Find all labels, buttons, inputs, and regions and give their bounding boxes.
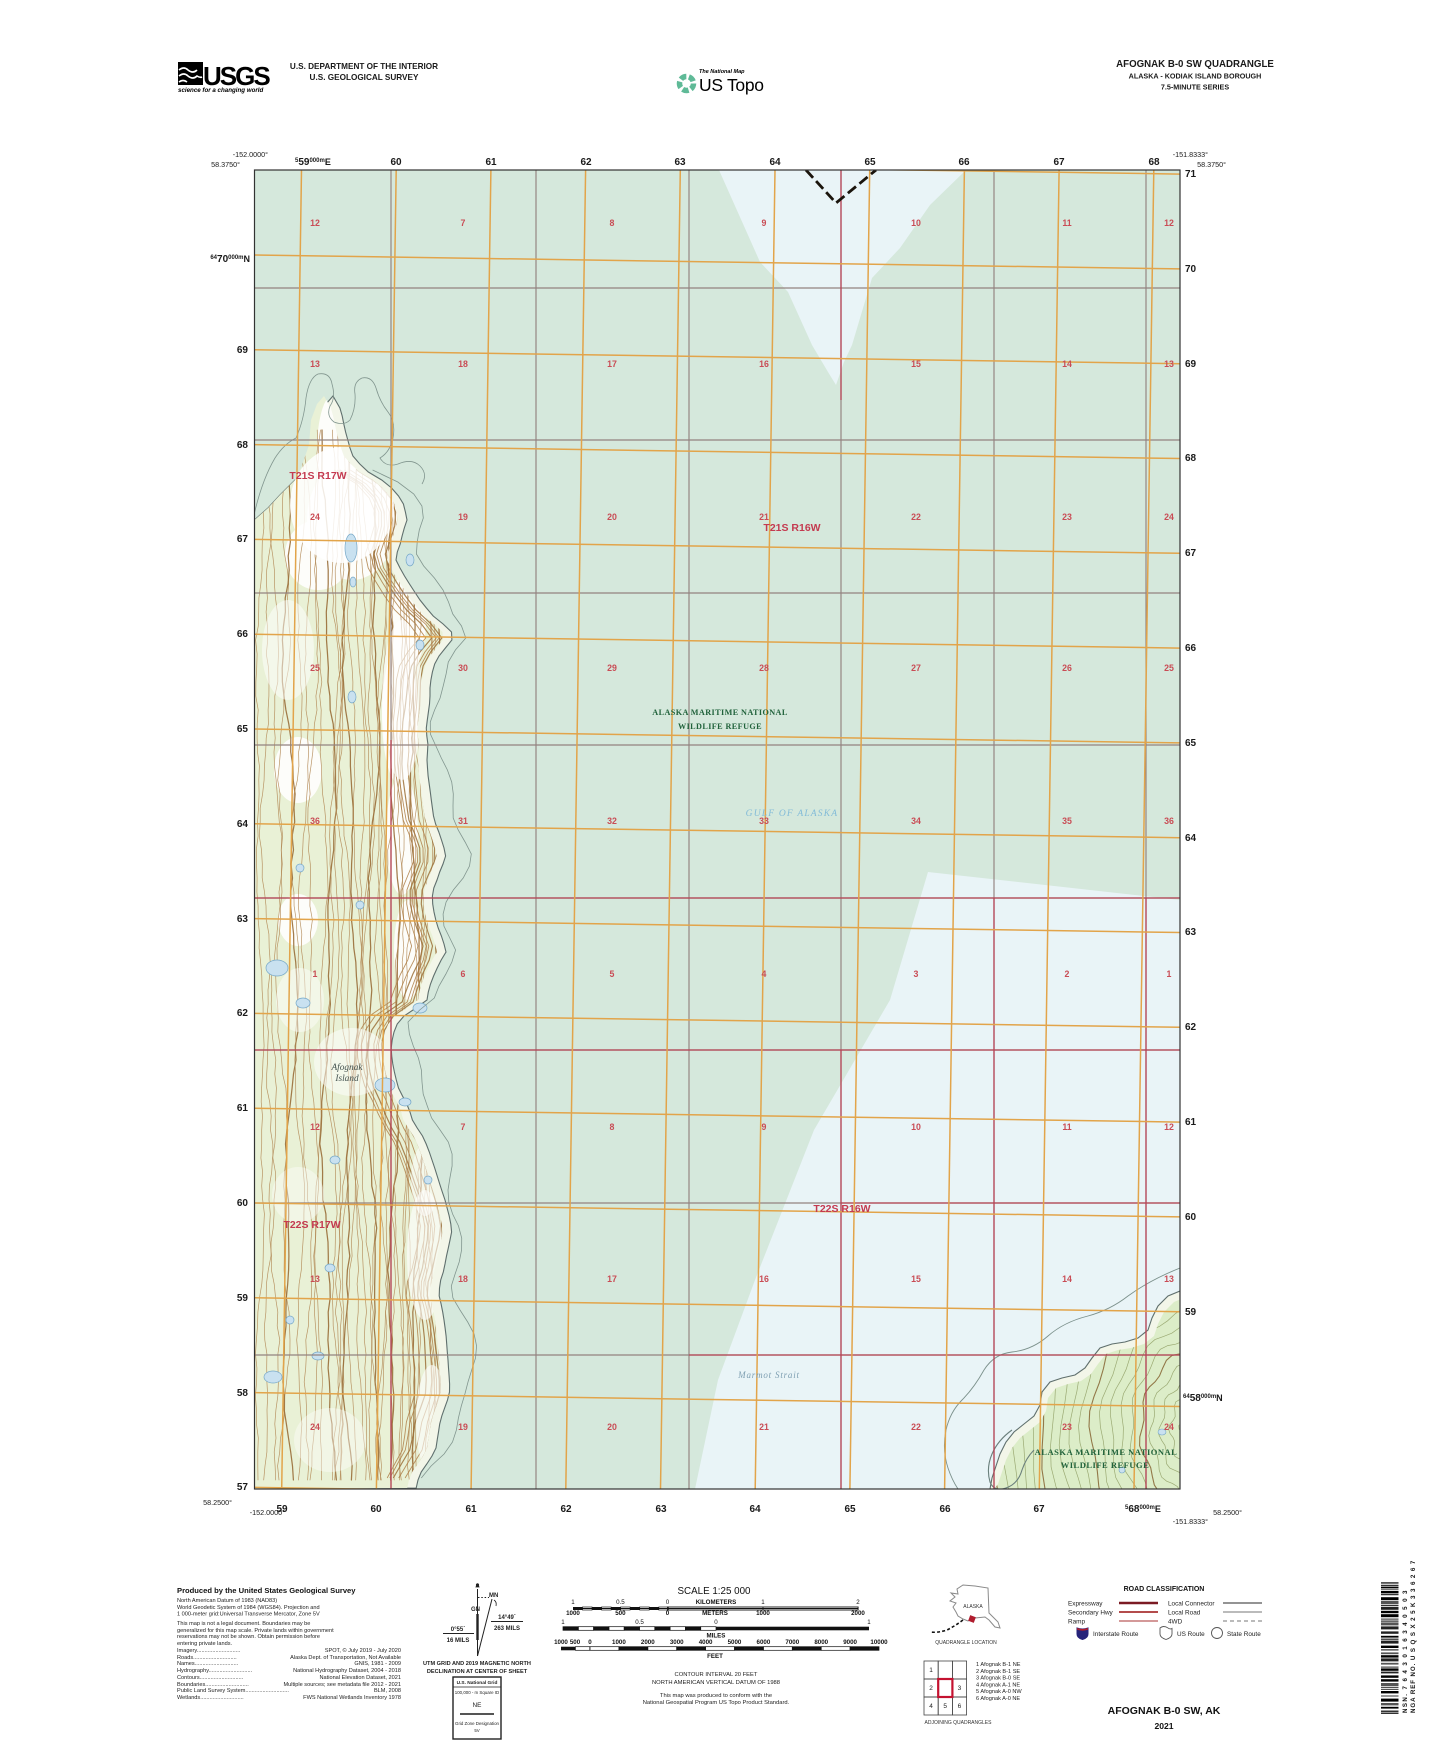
svg-text:58.2500°: 58.2500° xyxy=(1213,1508,1242,1517)
svg-text:9: 9 xyxy=(762,1122,767,1132)
svg-text:Grid Zone Designation: Grid Zone Designation xyxy=(455,1721,499,1726)
svg-text:62: 62 xyxy=(580,157,592,168)
svg-text:Produced by the United States: Produced by the United States Geological… xyxy=(177,1586,356,1595)
svg-text:SCALE 1:25 000: SCALE 1:25 000 xyxy=(678,1586,752,1597)
svg-text:7: 7 xyxy=(461,1122,466,1132)
svg-text:1000: 1000 xyxy=(554,1639,568,1646)
svg-text:24: 24 xyxy=(310,1422,320,1432)
svg-text:17: 17 xyxy=(607,1274,617,1284)
svg-text:65: 65 xyxy=(864,157,876,168)
svg-text:ALASKA MARITIME NATIONAL: ALASKA MARITIME NATIONAL xyxy=(1035,1447,1178,1457)
svg-text:11: 11 xyxy=(1062,1122,1071,1132)
svg-text:61: 61 xyxy=(237,1103,249,1114)
svg-text:20: 20 xyxy=(607,1422,617,1432)
svg-text:0: 0 xyxy=(714,1619,718,1626)
svg-text:T22S R17W: T22S R17W xyxy=(283,1219,340,1231)
svg-text:GN: GN xyxy=(471,1607,480,1613)
svg-text:SPOT, © July 2019 - July: SPOT, © July 2019 - July 2020 xyxy=(325,1647,401,1654)
svg-text:1: 1 xyxy=(761,1599,765,1606)
svg-text:64: 64 xyxy=(749,1504,761,1515)
svg-text:T21S R16W: T21S R16W xyxy=(763,522,820,534)
svg-text:31: 31 xyxy=(458,816,468,826)
svg-text:1: 1 xyxy=(929,1667,933,1674)
svg-text:1000: 1000 xyxy=(566,1610,580,1617)
svg-text:24: 24 xyxy=(310,512,320,522)
svg-text:36: 36 xyxy=(1164,816,1174,826)
svg-text:7000: 7000 xyxy=(785,1639,799,1646)
svg-text:25: 25 xyxy=(310,663,320,673)
svg-text:10: 10 xyxy=(911,1122,921,1132)
svg-text:11: 11 xyxy=(1062,218,1071,228)
svg-text:Local Connector: Local Connector xyxy=(1168,1601,1215,1608)
svg-text:NE: NE xyxy=(473,1702,482,1709)
svg-text:ALASKA - KODIAK ISLAND BOROUGH: ALASKA - KODIAK ISLAND BOROUGH xyxy=(1129,72,1262,81)
svg-text:US Topo: US Topo xyxy=(699,75,764,95)
svg-text:13: 13 xyxy=(1164,1274,1174,1284)
svg-text:61: 61 xyxy=(485,157,497,168)
svg-text:18: 18 xyxy=(458,1274,468,1284)
svg-text:58.2500°: 58.2500° xyxy=(203,1498,232,1507)
svg-text:Names.........................: Names............................ xyxy=(177,1661,239,1667)
svg-text:5V: 5V xyxy=(474,1728,479,1733)
svg-text:13: 13 xyxy=(310,359,320,369)
svg-text:16: 16 xyxy=(759,359,769,369)
svg-text:reservations may not be shown.: reservations may not be shown. Obtain pe… xyxy=(177,1634,320,1640)
svg-text:US Route: US Route xyxy=(1177,1631,1205,1638)
svg-text:0.5: 0.5 xyxy=(616,1599,625,1606)
svg-text:GULF OF ALASKA: GULF OF ALASKA xyxy=(746,809,839,819)
svg-text:National Hydrography Dataset: National Hydrography Dataset, 2004 - 201… xyxy=(293,1668,401,1674)
svg-text:FWS National Wetlands In: FWS National Wetlands Inventory 1978 xyxy=(303,1695,401,1701)
svg-text:19: 19 xyxy=(458,1422,468,1432)
svg-text:3000: 3000 xyxy=(670,1639,684,1646)
svg-text:4000: 4000 xyxy=(699,1639,713,1646)
svg-text:U.S. National Grid: U.S. National Grid xyxy=(457,1680,498,1686)
svg-text:17: 17 xyxy=(607,359,617,369)
svg-text:14°49´: 14°49´ xyxy=(498,1615,516,1621)
svg-text:63: 63 xyxy=(1185,927,1197,938)
svg-text:Public Land Survey Syste: Public Land Survey System...............… xyxy=(177,1688,289,1694)
svg-text:19: 19 xyxy=(458,512,468,522)
svg-text:3: 3 xyxy=(914,969,919,979)
svg-text:263 MILS: 263 MILS xyxy=(494,1626,520,1632)
svg-text:12: 12 xyxy=(1164,1122,1174,1132)
svg-text:12: 12 xyxy=(1164,218,1174,228)
svg-text:62: 62 xyxy=(237,1008,249,1019)
svg-text:100,000 - m Square ID: 100,000 - m Square ID xyxy=(455,1690,499,1695)
svg-text:9000: 9000 xyxy=(843,1639,857,1646)
svg-text:1000: 1000 xyxy=(756,1610,770,1617)
svg-text:ALASKA: ALASKA xyxy=(963,1604,983,1610)
svg-text:Afognak: Afognak xyxy=(331,1062,364,1073)
svg-text:10: 10 xyxy=(911,218,921,228)
svg-text:1000: 1000 xyxy=(612,1639,626,1646)
svg-text:62: 62 xyxy=(560,1504,572,1515)
svg-text:65: 65 xyxy=(237,724,249,735)
svg-text:AFOGNAK B-0 SW, AK: AFOGNAK B-0 SW, AK xyxy=(1108,1705,1221,1717)
svg-text:BLM, 2008: BLM, 2008 xyxy=(374,1688,401,1694)
svg-text:68: 68 xyxy=(1148,157,1160,168)
svg-text:61: 61 xyxy=(1185,1117,1197,1128)
svg-text:67: 67 xyxy=(1033,1504,1045,1515)
svg-text:T21S R17W: T21S R17W xyxy=(289,470,346,482)
svg-text:0: 0 xyxy=(666,1599,670,1606)
svg-text:State Route: State Route xyxy=(1227,1631,1261,1638)
svg-text:14: 14 xyxy=(1062,359,1072,369)
svg-text:MN: MN xyxy=(489,1593,498,1599)
svg-text:1 000-meter grid:Universal Tra: 1 000-meter grid:Universal Transverse Me… xyxy=(177,1612,320,1618)
svg-text:ADJOINING QUADRANGLES: ADJOINING QUADRANGLES xyxy=(925,1720,993,1726)
svg-text:0: 0 xyxy=(588,1639,592,1646)
svg-text:6: 6 xyxy=(461,969,466,979)
svg-text:0.5: 0.5 xyxy=(635,1619,644,1626)
svg-text:8: 8 xyxy=(610,1122,615,1132)
svg-text:1: 1 xyxy=(561,1619,565,1626)
svg-text:500: 500 xyxy=(570,1639,581,1646)
svg-text:Secondary Hwy: Secondary Hwy xyxy=(1068,1610,1114,1617)
svg-text:3: 3 xyxy=(958,1685,962,1692)
svg-text:0°55´: 0°55´ xyxy=(451,1627,465,1633)
svg-text:27: 27 xyxy=(911,663,921,673)
svg-text:National Geospatial Program US: National Geospatial Program US Topo Prod… xyxy=(643,1700,790,1706)
svg-text:26: 26 xyxy=(1062,663,1072,673)
svg-text:5000: 5000 xyxy=(728,1639,742,1646)
svg-text:METERS: METERS xyxy=(702,1610,728,1617)
svg-text:U.S. DEPARTMENT OF THE INTERIO: U.S. DEPARTMENT OF THE INTERIOR xyxy=(290,62,438,71)
svg-text:This map was produced to confo: This map was produced to conform with th… xyxy=(660,1693,772,1699)
svg-text:66: 66 xyxy=(958,157,970,168)
svg-text:-152.0000°: -152.0000° xyxy=(250,1508,285,1517)
svg-text:58: 58 xyxy=(237,1388,249,1399)
svg-text:NGA REF NO. U S Q S X 2 5 K 3: NGA REF NO. U S Q S X 2 5 K 3 3 6 2 6 7 xyxy=(1410,1560,1417,1713)
svg-text:60: 60 xyxy=(370,1504,382,1515)
svg-text:13: 13 xyxy=(1164,359,1174,369)
svg-text:Marmot Strait: Marmot Strait xyxy=(737,1370,800,1380)
svg-text:66: 66 xyxy=(237,629,249,640)
svg-text:ROAD CLASSIFICATION: ROAD CLASSIFICATION xyxy=(1124,1586,1205,1593)
svg-text:63: 63 xyxy=(674,157,686,168)
svg-text:21: 21 xyxy=(759,512,769,522)
svg-text:-152.0000°: -152.0000° xyxy=(233,150,268,159)
svg-text:22: 22 xyxy=(911,512,921,522)
svg-text:Contours......................: Contours............................ xyxy=(177,1675,244,1681)
svg-text:QUADRANGLE LOCATION: QUADRANGLE LOCATION xyxy=(935,1640,997,1646)
svg-text:71: 71 xyxy=(1185,169,1197,180)
svg-text:15: 15 xyxy=(911,359,921,369)
svg-text:18: 18 xyxy=(458,359,468,369)
svg-text:69: 69 xyxy=(237,345,249,356)
svg-text:2000: 2000 xyxy=(851,1610,865,1617)
svg-text:12: 12 xyxy=(310,1122,320,1132)
svg-text:Wetlands......................: Wetlands............................ xyxy=(177,1695,244,1701)
svg-text:30: 30 xyxy=(458,663,468,673)
svg-text:-151.8333°: -151.8333° xyxy=(1173,1517,1208,1526)
svg-text:entering private lands.: entering private lands. xyxy=(177,1641,232,1647)
svg-text:-151.8333°: -151.8333° xyxy=(1173,150,1208,159)
svg-text:62: 62 xyxy=(1185,1022,1197,1033)
svg-text:57: 57 xyxy=(237,1482,249,1493)
svg-text:68: 68 xyxy=(237,440,249,451)
svg-text:DECLINATION AT CENTER OF SHEET: DECLINATION AT CENTER OF SHEET xyxy=(427,1669,528,1675)
svg-text:67: 67 xyxy=(237,534,249,545)
svg-text:Local Road: Local Road xyxy=(1168,1610,1201,1617)
svg-text:WILDLIFE REFUGE: WILDLIFE REFUGE xyxy=(678,722,762,731)
svg-text:63: 63 xyxy=(655,1504,667,1515)
svg-text:32: 32 xyxy=(607,816,617,826)
svg-text:67: 67 xyxy=(1185,548,1197,559)
svg-text:Hydrography...................: Hydrography............................ xyxy=(177,1668,253,1674)
svg-text:67: 67 xyxy=(1053,157,1065,168)
svg-text:21: 21 xyxy=(759,1422,769,1432)
svg-text:FEET: FEET xyxy=(707,1653,723,1660)
svg-text:2000: 2000 xyxy=(641,1639,655,1646)
svg-text:10000: 10000 xyxy=(870,1639,888,1646)
svg-text:12: 12 xyxy=(310,218,320,228)
svg-text:63: 63 xyxy=(237,914,249,925)
svg-text:2021: 2021 xyxy=(1154,1721,1173,1731)
svg-text:2 Afognak B-1 SE: 2 Afognak B-1 SE xyxy=(976,1669,1020,1675)
svg-text:8000: 8000 xyxy=(814,1639,828,1646)
svg-text:science for a changing world: science for a changing world xyxy=(178,87,263,94)
svg-text:Interstate Route: Interstate Route xyxy=(1093,1631,1139,1638)
svg-text:KILOMETERS: KILOMETERS xyxy=(696,1599,737,1606)
svg-text:2: 2 xyxy=(856,1599,860,1606)
svg-text:64: 64 xyxy=(1185,833,1197,844)
svg-text:2: 2 xyxy=(1065,969,1070,979)
svg-text:500: 500 xyxy=(615,1610,626,1617)
svg-text:24: 24 xyxy=(1164,1422,1174,1432)
svg-text:NSN. 7 6 4 3 0 1 6 3 4 0 5 0: NSN. 7 6 4 3 0 1 6 3 4 0 5 0 3 xyxy=(1402,1589,1409,1713)
svg-text:23: 23 xyxy=(1062,1422,1072,1432)
svg-text:28: 28 xyxy=(759,663,769,673)
svg-text:5: 5 xyxy=(943,1703,947,1710)
svg-text:ALASKA MARITIME NATIONAL: ALASKA MARITIME NATIONAL xyxy=(652,708,788,717)
svg-text:36: 36 xyxy=(310,816,320,826)
svg-text:6 Afognak A-0 NE: 6 Afognak A-0 NE xyxy=(976,1696,1020,1702)
svg-text:60: 60 xyxy=(237,1198,249,1209)
svg-text:1: 1 xyxy=(313,969,318,979)
svg-text:65: 65 xyxy=(844,1504,856,1515)
svg-text:22: 22 xyxy=(911,1422,921,1432)
svg-text:25: 25 xyxy=(1164,663,1174,673)
svg-text:Imagery.......................: Imagery............................ xyxy=(177,1648,241,1654)
svg-text:1 Afognak B-1 NE: 1 Afognak B-1 NE xyxy=(976,1662,1021,1668)
svg-text:35: 35 xyxy=(1062,816,1072,826)
svg-text:Expressway: Expressway xyxy=(1068,1601,1103,1608)
svg-text:5: 5 xyxy=(610,969,615,979)
svg-text:64: 64 xyxy=(237,819,249,830)
svg-text:69: 69 xyxy=(1185,359,1197,370)
svg-text:WILDLIFE REFUGE: WILDLIFE REFUGE xyxy=(1061,1460,1150,1470)
svg-text:68: 68 xyxy=(1185,453,1197,464)
svg-text:59: 59 xyxy=(1185,1307,1197,1318)
svg-text:23: 23 xyxy=(1062,512,1072,522)
svg-text:GNIS, 1981 - 2009: GNIS, 1981 - 2009 xyxy=(354,1661,401,1667)
svg-text:65: 65 xyxy=(1185,738,1197,749)
svg-text:Ramp: Ramp xyxy=(1068,1619,1085,1626)
svg-text:Island: Island xyxy=(334,1074,359,1084)
svg-text:NORTH AMERICAN VERTICAL DATUM: NORTH AMERICAN VERTICAL DATUM OF 1988 xyxy=(652,1680,780,1686)
svg-text:14: 14 xyxy=(1062,1274,1072,1284)
svg-text:70: 70 xyxy=(1185,264,1197,275)
svg-text:U.S. GEOLOGICAL SURVEY: U.S. GEOLOGICAL SURVEY xyxy=(310,73,419,82)
svg-text:AFOGNAK B-0 SW QUADRANGLE: AFOGNAK B-0 SW QUADRANGLE xyxy=(1116,59,1274,70)
svg-text:34: 34 xyxy=(911,816,921,826)
svg-text:58.3750°: 58.3750° xyxy=(1197,160,1226,169)
svg-text:North American Datum of 1983 (: North American Datum of 1983 (NAD83) xyxy=(177,1598,277,1604)
svg-text:5 Afognak A-0 NW: 5 Afognak A-0 NW xyxy=(976,1689,1022,1695)
svg-text:61: 61 xyxy=(465,1504,477,1515)
svg-text:6: 6 xyxy=(958,1703,962,1710)
svg-text:World Geodetic System of 1984: World Geodetic System of 1984 (WGS84). P… xyxy=(177,1605,320,1611)
svg-text:20: 20 xyxy=(607,512,617,522)
svg-text:3 Afognak B-0 SE: 3 Afognak B-0 SE xyxy=(976,1676,1020,1682)
svg-text:66: 66 xyxy=(1185,643,1197,654)
svg-text:4WD: 4WD xyxy=(1168,1619,1183,1626)
svg-text:16 MILS: 16 MILS xyxy=(447,1638,470,1644)
svg-text:15: 15 xyxy=(911,1274,921,1284)
svg-text:60: 60 xyxy=(1185,1212,1197,1223)
svg-text:0: 0 xyxy=(666,1610,670,1617)
svg-text:7.5-MINUTE SERIES: 7.5-MINUTE SERIES xyxy=(1161,83,1230,92)
svg-text:16: 16 xyxy=(759,1274,769,1284)
svg-text:This map is not a legal docume: This map is not a legal document. Bounda… xyxy=(177,1621,310,1627)
svg-text:59: 59 xyxy=(237,1293,249,1304)
svg-text:58.3750°: 58.3750° xyxy=(211,160,240,169)
svg-text:7: 7 xyxy=(461,218,466,228)
svg-text:1: 1 xyxy=(571,1599,575,1606)
svg-text:4: 4 xyxy=(762,969,767,979)
svg-text:8: 8 xyxy=(610,218,615,228)
svg-text:UTM GRID AND 2019 MAGNETIC NOR: UTM GRID AND 2019 MAGNETIC NORTH xyxy=(423,1661,531,1667)
svg-text:24: 24 xyxy=(1164,512,1174,522)
svg-text:29: 29 xyxy=(607,663,617,673)
svg-text:4 Afognak A-1 NE: 4 Afognak A-1 NE xyxy=(976,1682,1020,1688)
svg-text:4: 4 xyxy=(929,1703,933,1710)
svg-text:66: 66 xyxy=(939,1504,951,1515)
svg-text:CONTOUR INTERVAL 20 FEET: CONTOUR INTERVAL 20 FEET xyxy=(675,1672,758,1678)
svg-text:6000: 6000 xyxy=(757,1639,771,1646)
svg-text:T22S R16W: T22S R16W xyxy=(813,1203,870,1215)
svg-text:64: 64 xyxy=(769,157,781,168)
svg-text:1: 1 xyxy=(1167,969,1172,979)
svg-text:13: 13 xyxy=(310,1274,320,1284)
svg-text:1: 1 xyxy=(867,1619,871,1626)
svg-text:National Elevation Dataset: National Elevation Dataset, 2021 xyxy=(320,1675,401,1681)
svg-text:60: 60 xyxy=(390,157,402,168)
svg-text:2: 2 xyxy=(929,1685,933,1692)
svg-text:9: 9 xyxy=(762,218,767,228)
